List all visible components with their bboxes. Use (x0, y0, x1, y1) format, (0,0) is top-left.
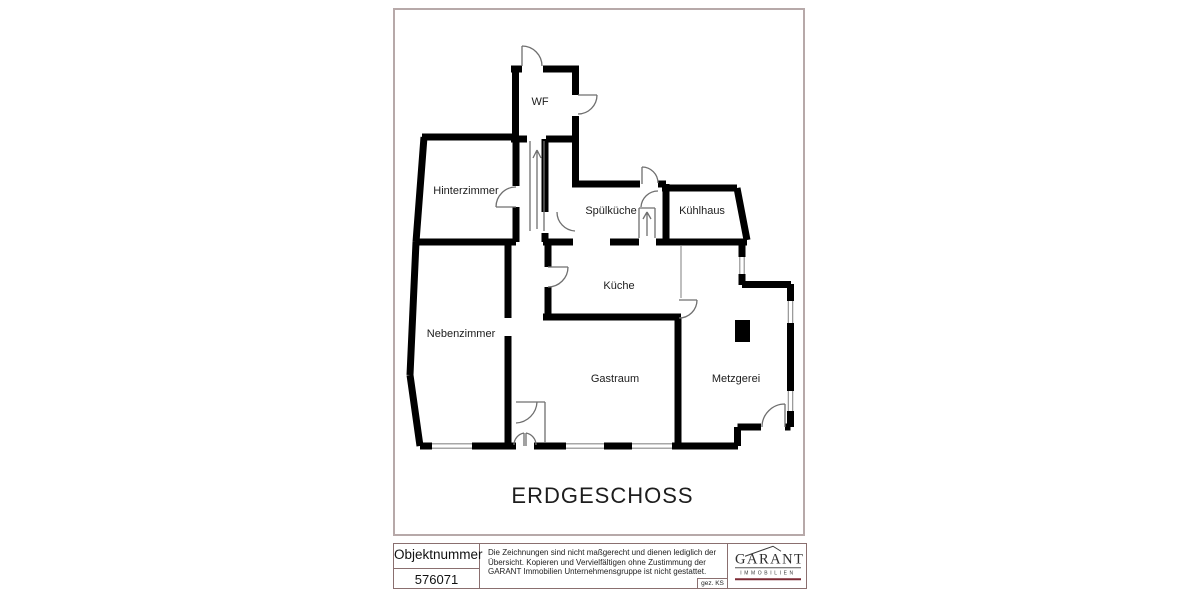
room-label-nebenzimmer: Nebenzimmer (427, 328, 496, 340)
door-metzgerei-entry (679, 300, 697, 318)
door-entrance-double (514, 433, 536, 446)
door-vestibule-inner (516, 402, 537, 423)
room-label-kueche: Küche (603, 280, 634, 292)
door-kueche (548, 267, 568, 287)
garant-logo: GARANT IMMOBILIEN (735, 552, 801, 580)
room-label-hinterzimmer: Hinterzimmer (433, 185, 499, 197)
floor-title: ERDGESCHOSS (470, 483, 735, 509)
door-metzgerei-exit (762, 404, 785, 427)
room-label-metzgerei: Metzgerei (712, 373, 760, 385)
title-block: Objektnummer 576071 Die Zeichnungen sind… (393, 543, 807, 589)
logo-subtitle: IMMOBILIEN (735, 570, 801, 580)
door-spuelkueche-top (642, 167, 658, 184)
disclaimer-text: Die Zeichnungen sind nicht maßgerecht un… (488, 548, 722, 577)
logo-cell: GARANT IMMOBILIEN (728, 544, 808, 588)
signed-box: gez. KS (697, 578, 727, 588)
door-shaft (641, 191, 658, 207)
logo-roof-icon (737, 545, 799, 557)
door-corridor (557, 212, 575, 231)
walls-layer (410, 66, 791, 447)
room-label-kuehlhaus: Kühlhaus (679, 205, 725, 217)
object-number-label: Objektnummer (394, 547, 479, 562)
room-label-gastraum: Gastraum (591, 373, 639, 385)
floor-plan: WF Hinterzimmer Spülküche Kühlhaus Küche… (0, 0, 1200, 600)
object-number-cell: Objektnummer 576071 (394, 544, 480, 588)
door-hinterzimmer (496, 187, 516, 207)
room-label-spuelkueche: Spülküche (585, 205, 636, 217)
drawing-sheet: WF Hinterzimmer Spülküche Kühlhaus Küche… (0, 0, 1200, 600)
pillar (735, 320, 750, 342)
door-wf-right (578, 95, 597, 114)
stairs-shaft (639, 208, 655, 238)
object-number-value: 576071 (394, 572, 479, 587)
cell-divider (394, 568, 480, 569)
door-wf-top (522, 46, 542, 66)
room-label-wf: WF (531, 96, 548, 108)
disclaimer-cell: Die Zeichnungen sind nicht maßgerecht un… (480, 544, 728, 588)
